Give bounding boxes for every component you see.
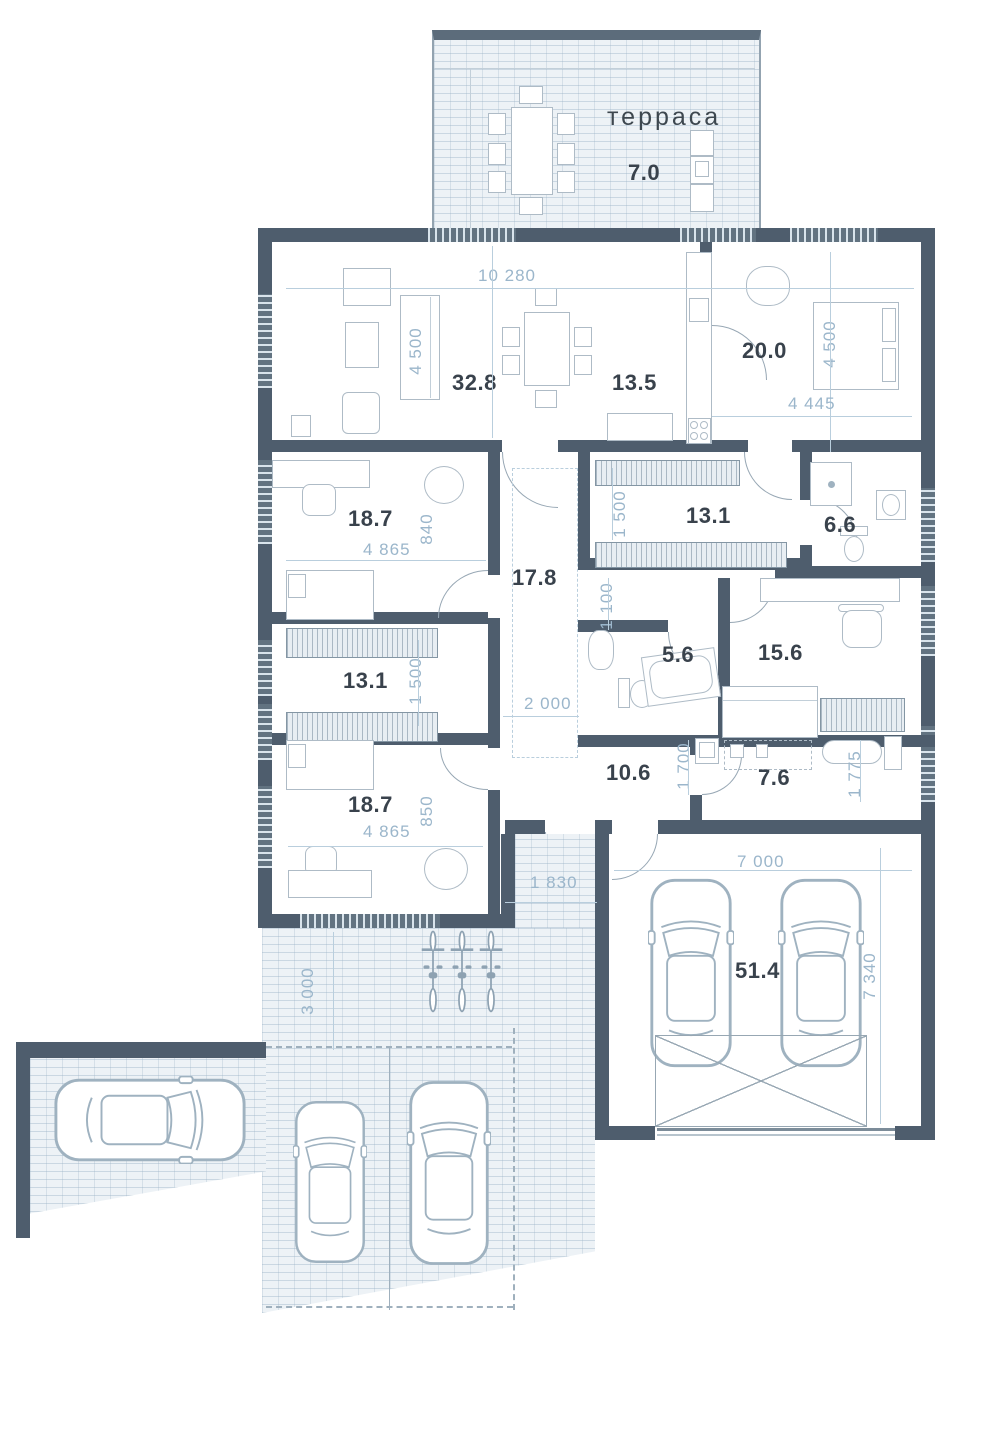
dim-wardrobe-left-depth: 1 500	[406, 651, 426, 711]
room-area-living: 32.8	[452, 370, 497, 396]
wall	[578, 452, 590, 570]
terrace-chair	[557, 113, 575, 135]
parking-line	[513, 1028, 515, 1310]
wall	[488, 452, 500, 575]
coffee-table	[345, 322, 379, 368]
washbasin	[588, 630, 614, 670]
grill	[690, 130, 714, 156]
laundry-appliance	[730, 744, 744, 758]
grill	[690, 184, 714, 212]
office-chair	[842, 610, 882, 648]
dining-chair	[535, 288, 557, 306]
room-label-terrace: терраса	[607, 103, 721, 132]
wall	[595, 1126, 655, 1140]
dim-line	[333, 932, 334, 1050]
dim-line	[688, 740, 689, 795]
stove-burner	[700, 421, 708, 429]
wall	[501, 834, 515, 928]
window	[680, 228, 756, 242]
dining-chair	[535, 390, 557, 408]
pouf	[424, 848, 468, 890]
grill	[695, 161, 709, 177]
parking-line	[389, 1048, 390, 1310]
sofa	[722, 686, 818, 738]
laundry-appliance	[756, 744, 768, 758]
bicycle	[449, 928, 475, 1020]
wall	[505, 820, 545, 834]
terrace-chair	[557, 143, 575, 165]
window	[258, 460, 272, 544]
shower-drain	[828, 481, 835, 488]
wardrobe-shelving	[595, 460, 740, 486]
bicycle	[420, 928, 446, 1020]
kitchen-sink	[689, 298, 709, 322]
door-arc	[744, 452, 792, 500]
window	[921, 488, 935, 562]
carport-wall	[16, 1042, 266, 1058]
window	[258, 704, 272, 760]
dim-wardrobe-top-depth: 1 500	[610, 484, 630, 544]
dim-line	[418, 640, 419, 726]
dim-hall-passage: 1 100	[597, 576, 617, 636]
wall	[895, 1126, 935, 1140]
pillow	[882, 348, 896, 382]
wall	[718, 620, 730, 632]
door-arc	[438, 570, 488, 618]
wall	[558, 440, 748, 452]
stove-burner	[690, 432, 698, 440]
dim-line	[860, 740, 861, 802]
pillow	[882, 308, 896, 342]
garage-door	[657, 1128, 895, 1131]
dim-bedroom-bl-width: 4 865	[363, 822, 411, 842]
wall	[658, 820, 935, 834]
pillow	[288, 744, 306, 768]
window	[428, 228, 516, 242]
wall	[488, 618, 500, 748]
window	[300, 914, 440, 928]
armchair	[342, 392, 380, 434]
dim-living-depth: 4 500	[406, 321, 426, 381]
dim-line	[880, 848, 881, 1124]
stove-burner	[700, 432, 708, 440]
room-area-bedroom-tr: 20.0	[742, 338, 787, 364]
room-area-bedroom-tl: 18.7	[348, 506, 393, 532]
washing-machine-drum	[699, 742, 715, 758]
room-area-hall: 17.8	[512, 565, 557, 591]
floor-plan: терраса 7.0	[0, 0, 1000, 1455]
pillow	[288, 574, 306, 598]
toilet-tank	[618, 678, 630, 708]
room-area-laundry: 7.6	[758, 765, 790, 791]
kitchen-counter	[686, 252, 712, 444]
dim-laundry-depth: 1 775	[845, 744, 865, 804]
dining-chair	[502, 355, 520, 375]
terrace-chair	[519, 197, 543, 215]
room-area-wardrobe-left: 13.1	[343, 668, 388, 694]
window	[258, 640, 272, 696]
dim-line	[612, 468, 613, 540]
wardrobe-shelving	[595, 542, 787, 568]
stove-burner	[690, 421, 698, 429]
car	[53, 1076, 247, 1164]
parking-line	[266, 1306, 513, 1308]
side-table	[291, 415, 311, 437]
door-arc	[440, 748, 488, 790]
window	[790, 228, 878, 242]
wall	[595, 820, 612, 834]
wall	[792, 440, 935, 452]
dim-walkway-width: 3 000	[298, 961, 318, 1021]
kitchen-island	[607, 413, 673, 441]
window	[921, 586, 935, 656]
dining-chair	[574, 355, 592, 375]
dining-chair	[574, 327, 592, 347]
garage-door-swing	[655, 1035, 867, 1127]
dim-corridor-depth: 1 700	[674, 736, 694, 796]
bicycle	[478, 928, 504, 1020]
dim-line	[492, 246, 493, 438]
dining-chair	[502, 327, 520, 347]
dim-garage-depth: 7 340	[860, 946, 880, 1006]
dim-line	[503, 716, 579, 717]
dim-line	[712, 416, 912, 417]
dim-bedroom-tl-offset: 840	[417, 499, 437, 559]
wall	[595, 820, 609, 1140]
dim-line	[288, 846, 483, 847]
dim-living-width: 10 280	[478, 266, 536, 286]
terrace-chair	[519, 86, 543, 104]
car	[407, 1070, 491, 1276]
dim-bedroom-bl-offset: 850	[417, 781, 437, 841]
garage-door	[657, 1134, 895, 1136]
car	[293, 1088, 367, 1276]
dryer	[884, 736, 902, 770]
dim-hall-width: 2 000	[524, 694, 572, 714]
room-area-study: 15.6	[758, 640, 803, 666]
terrace-chair	[488, 143, 506, 165]
room-area-corridor: 10.6	[606, 760, 651, 786]
hall-zone-outline	[512, 468, 578, 758]
room-area-garage: 51.4	[735, 958, 780, 984]
room-area-kitchen: 13.5	[612, 370, 657, 396]
dim-bedroom-width: 4 445	[788, 394, 836, 414]
dim-line	[830, 252, 831, 452]
window	[258, 786, 272, 868]
wall	[921, 228, 935, 1140]
dim-bedroom-tl-width: 4 865	[363, 540, 411, 560]
desk	[288, 870, 372, 898]
carport-wall	[16, 1042, 30, 1238]
wardrobe-shelving	[820, 698, 905, 732]
terrace-chair	[488, 171, 506, 193]
dim-porch-width: 1 830	[530, 873, 578, 893]
wall	[258, 440, 502, 452]
dim-line	[286, 288, 914, 289]
terrace-edge-line	[470, 68, 471, 228]
desk	[760, 578, 900, 602]
dim-line	[608, 578, 609, 630]
terrace-table	[511, 107, 553, 195]
room-area-terrace: 7.0	[628, 160, 660, 186]
room-area-bedroom-bl: 18.7	[348, 792, 393, 818]
room-area-bathroom-mid: 5.6	[662, 642, 694, 668]
wall	[690, 795, 702, 820]
terrace-chair	[488, 113, 506, 135]
sofa-back-line	[723, 700, 817, 701]
wall	[578, 620, 668, 632]
terrace-edge-line	[434, 68, 755, 69]
wardrobe-shelving	[286, 712, 438, 742]
toilet-bowl	[844, 536, 864, 562]
sofa-back-line	[430, 297, 431, 398]
dim-line	[286, 560, 486, 561]
washbasin-bowl	[882, 494, 900, 516]
chair	[302, 484, 336, 516]
room-area-bathroom-right: 6.6	[824, 512, 856, 538]
dim-line	[614, 870, 912, 871]
dim-line	[505, 902, 597, 903]
dining-table	[524, 312, 570, 386]
window	[258, 294, 272, 388]
armchair	[746, 266, 790, 306]
tv-cabinet	[343, 268, 391, 306]
wall	[488, 790, 500, 916]
room-area-wardrobe-top: 13.1	[686, 503, 731, 529]
dim-garage-width: 7 000	[737, 852, 785, 872]
wall	[775, 566, 935, 578]
terrace-chair	[557, 171, 575, 193]
